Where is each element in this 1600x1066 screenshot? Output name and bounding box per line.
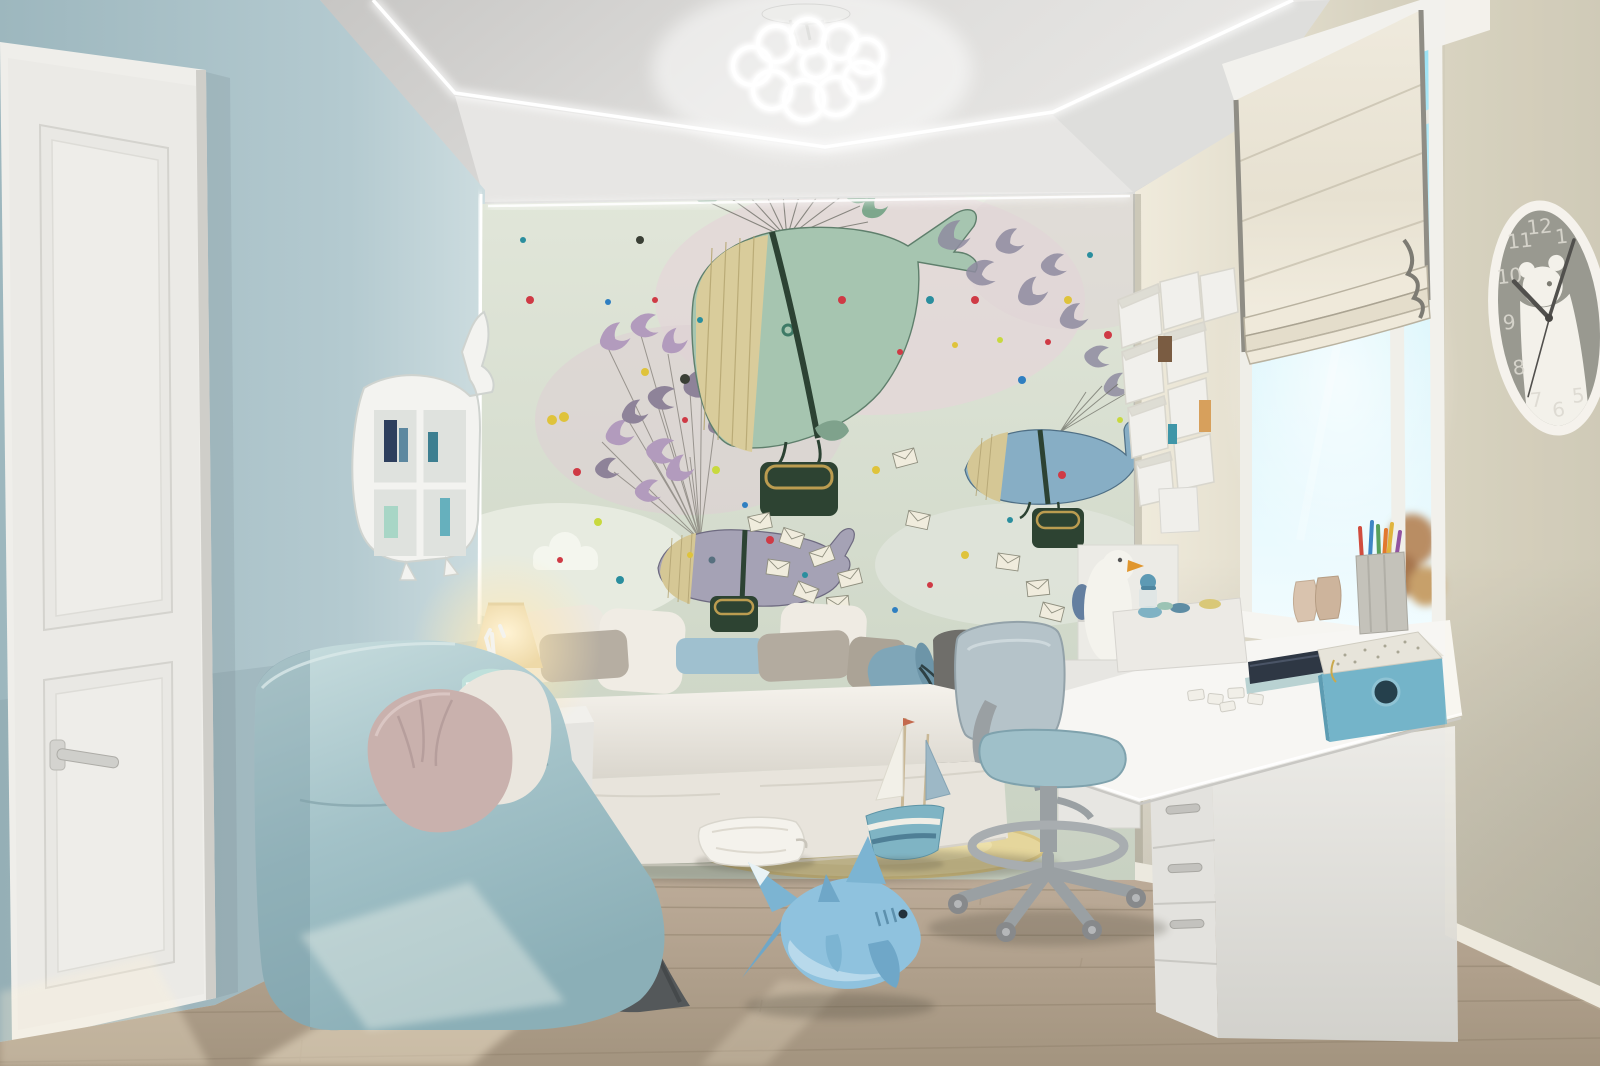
confetti-dot: [1045, 339, 1051, 345]
mural-envelope: [996, 553, 1020, 571]
confetti-dot: [802, 572, 808, 578]
bed-cushion-blue: [676, 638, 766, 674]
shark-eye: [899, 910, 908, 919]
confetti-dot: [742, 502, 748, 508]
confetti-dot: [1018, 376, 1026, 384]
confetti-dot: [559, 412, 569, 422]
confetti-dot: [926, 296, 934, 304]
confetti-dot: [680, 374, 690, 384]
chair-gas-lift: [1040, 786, 1057, 852]
confetti-dot: [1104, 331, 1112, 339]
wall-box: [1159, 487, 1199, 533]
confetti-dot: [605, 299, 611, 305]
confetti-dot: [547, 415, 557, 425]
confetti-dot: [712, 466, 720, 474]
confetti-dot: [526, 296, 534, 304]
confetti-dot: [927, 582, 933, 588]
confetti-dot: [1007, 517, 1013, 523]
confetti-dot: [872, 466, 880, 474]
shelf-decor-item: [1168, 424, 1177, 444]
confetti-dot: [1058, 471, 1066, 479]
confetti-dot: [573, 468, 581, 476]
confetti-dot: [687, 552, 693, 558]
confetti-dot: [1064, 296, 1072, 304]
confetti-dot: [897, 349, 903, 355]
mural-envelope: [766, 559, 790, 577]
confetti-dot: [636, 236, 644, 244]
confetti-dot: [997, 337, 1003, 343]
confetti-dot: [616, 576, 624, 584]
confetti-dot: [594, 518, 602, 526]
bed-pillow-grey: [757, 630, 851, 683]
mural-envelope: [1026, 579, 1049, 596]
confetti-dot: [1087, 252, 1093, 258]
shelf-decor-item: [1199, 400, 1211, 432]
door: [0, 42, 238, 1044]
boat-hull: [866, 805, 944, 859]
room-render: 12 1 11 10 9 8 7 6 5: [0, 0, 1600, 1066]
shelf-book: [384, 420, 397, 462]
shelf-decor-item: [1158, 336, 1172, 362]
confetti-dot: [838, 296, 846, 304]
confetti-dot: [520, 237, 526, 243]
confetti-dot: [557, 557, 563, 563]
confetti-dot: [971, 296, 979, 304]
glass-jar-blue-lid: [1139, 574, 1157, 608]
storage-box-teal: [1318, 632, 1447, 742]
confetti-dot: [961, 551, 969, 559]
chair-seat: [979, 730, 1125, 787]
wall-light-wash: [1445, 0, 1600, 1010]
confetti-dot: [892, 607, 898, 613]
drawer-side-panel: [1212, 726, 1458, 1042]
confetti-dot: [697, 317, 703, 323]
drawer-face: [1150, 762, 1218, 1038]
confetti-dot: [766, 536, 774, 544]
confetti-dot: [682, 417, 688, 423]
confetti-dot: [952, 342, 958, 348]
confetti-dot: [1117, 417, 1123, 423]
confetti-dot: [652, 297, 658, 303]
floor-pillow-white: [695, 817, 815, 872]
confetti-dot: [641, 368, 649, 376]
